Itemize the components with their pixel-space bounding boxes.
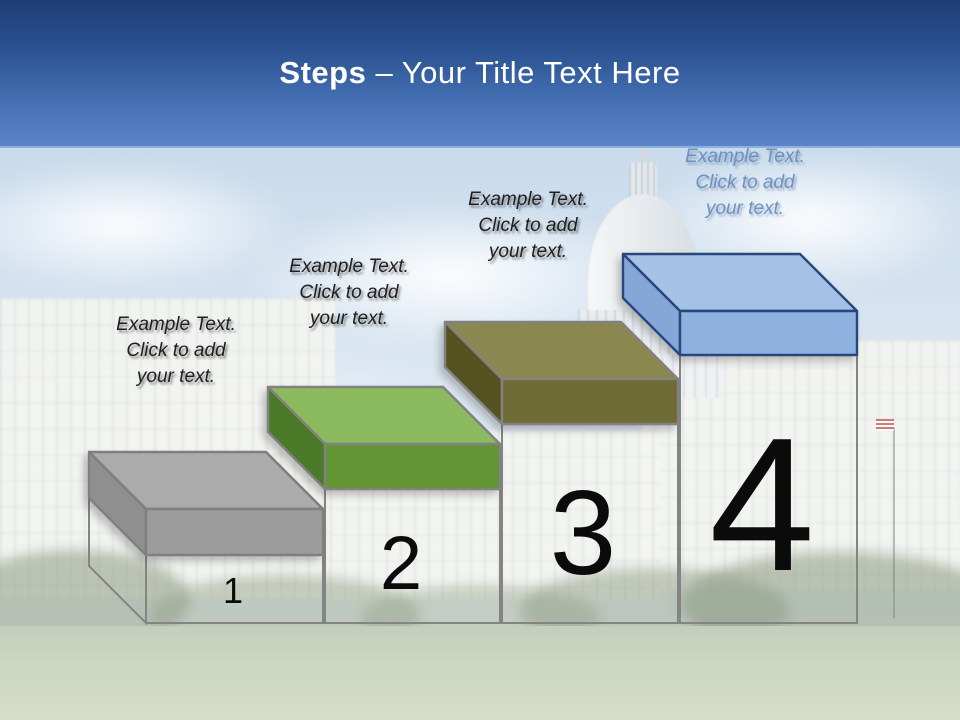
step-3-caption[interactable]: Example Text. Click to add your text.: [437, 187, 619, 265]
step-1-box[interactable]: [89, 452, 323, 555]
step-number: 4: [709, 399, 815, 611]
step-2-box[interactable]: [268, 387, 500, 489]
slide-title[interactable]: Steps – Your Title Text Here: [279, 55, 680, 91]
step-2-caption[interactable]: Example Text. Click to add your text.: [258, 254, 440, 332]
slide-title-emphasis: Steps: [279, 55, 366, 90]
title-banner: Steps – Your Title Text Here: [0, 0, 960, 148]
step-4-caption[interactable]: Example Text. Click to add your text.: [654, 144, 836, 222]
step-number: 2: [380, 521, 422, 606]
step-4-box[interactable]: [623, 254, 857, 355]
slide-canvas: 1 2 3 4 Example Text. Click to add your …: [0, 0, 960, 720]
step-number: 1: [223, 570, 243, 611]
step-number: 3: [550, 466, 617, 600]
step-3-box[interactable]: [445, 322, 678, 424]
slide-title-rest: – Your Title Text Here: [366, 55, 680, 90]
step-1-caption[interactable]: Example Text. Click to add your text.: [85, 312, 267, 390]
